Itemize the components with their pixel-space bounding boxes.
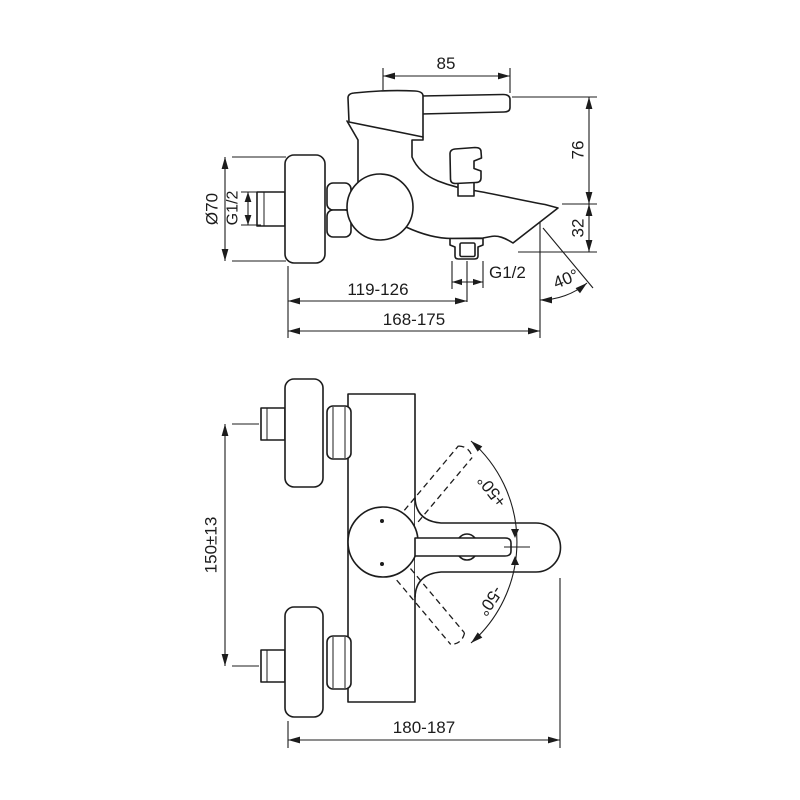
arrowhead <box>548 737 560 744</box>
arrowhead <box>383 73 395 80</box>
nipple-bottom <box>261 650 285 682</box>
dim-85: 85 <box>383 54 510 93</box>
arrowhead <box>222 249 229 261</box>
arrowhead <box>586 97 593 109</box>
screw-dot <box>380 519 384 523</box>
dim-label-119-126: 119-126 <box>347 280 408 299</box>
neck-left-contour <box>347 121 358 182</box>
arrowhead <box>586 192 593 204</box>
handle-lever <box>421 95 510 115</box>
handle-base-circle <box>348 507 418 577</box>
mounting-bottom <box>261 607 351 717</box>
dim-label-inlet-thread: G1/2 <box>225 191 242 226</box>
screw-dot <box>380 562 384 566</box>
dim-spout-angle: 40° <box>540 228 593 303</box>
mounting-top <box>261 379 351 487</box>
arrowhead <box>473 279 483 285</box>
dim-label-swing-minus: -50° <box>473 583 506 620</box>
hex-nut-top <box>327 406 351 459</box>
wall-flange <box>285 155 325 263</box>
diverter-knob <box>450 148 482 197</box>
plan-view: +50° -50° 150±13 180-187 <box>202 379 561 748</box>
dim-label-32: 32 <box>569 219 588 238</box>
dim-label-150: 150±13 <box>202 517 221 574</box>
flange-top <box>285 379 323 487</box>
arrowhead <box>245 192 252 202</box>
flange-bottom <box>285 607 323 717</box>
dim-150: 150±13 <box>202 424 260 666</box>
arrowhead <box>586 204 593 216</box>
arrowhead <box>288 298 300 305</box>
dimension-line <box>225 424 259 666</box>
outlet-inner <box>460 243 475 257</box>
arrowhead <box>452 279 462 285</box>
arrowhead <box>528 328 540 335</box>
dim-label-flange-dia: Ø70 <box>203 193 222 225</box>
side-view: 85 76 32 Ø70 G1/2 <box>203 54 598 338</box>
dim-label-85: 85 <box>437 54 456 73</box>
faucet-dimension-drawing: 85 76 32 Ø70 G1/2 <box>0 0 800 800</box>
handle-lever-plan <box>415 538 511 556</box>
arrowhead <box>540 297 552 304</box>
body-circle <box>347 174 413 240</box>
arrowhead <box>245 215 252 225</box>
outlet-connection <box>450 239 483 260</box>
technical-drawing-page: 85 76 32 Ø70 G1/2 <box>0 0 800 800</box>
arrowhead <box>455 298 467 305</box>
dim-label-swing-plus: +50° <box>474 471 511 511</box>
diverter-cap <box>450 148 482 184</box>
nipple-top <box>261 408 285 440</box>
dim-76: 76 <box>512 97 597 204</box>
dim-label-180-187: 180-187 <box>393 718 455 737</box>
arrowhead <box>288 328 300 335</box>
arrowhead <box>498 73 510 80</box>
body-spout-contour <box>406 137 558 243</box>
dim-outlet-thread: G1/2 <box>452 261 526 302</box>
hex-nut-bottom <box>327 636 351 689</box>
arrowhead <box>222 424 229 436</box>
arrowhead <box>222 654 229 666</box>
arrowhead <box>222 157 229 169</box>
dim-label-outlet-thread: G1/2 <box>489 263 526 282</box>
inlet-nipple <box>257 192 285 226</box>
dim-inlet-thread: G1/2 <box>225 191 262 226</box>
nipple-body <box>257 192 285 226</box>
arrowhead <box>288 737 300 744</box>
dim-label-168-175: 168-175 <box>383 310 445 329</box>
arrowhead <box>586 240 593 252</box>
cartridge-cap <box>348 91 423 137</box>
dim-label-76: 76 <box>569 141 588 160</box>
